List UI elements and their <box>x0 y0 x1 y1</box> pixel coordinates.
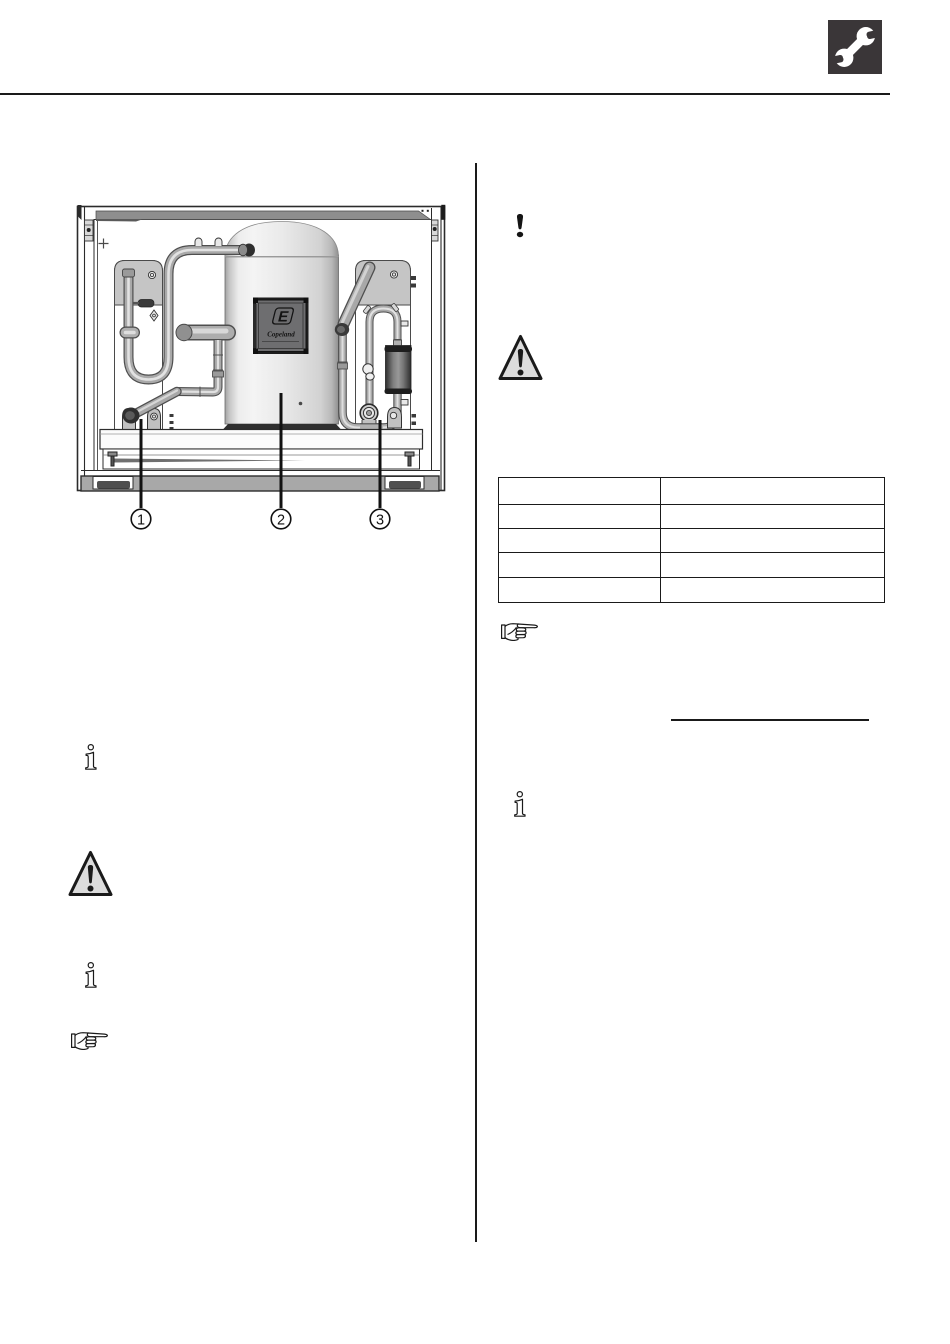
svg-text:2: 2 <box>277 512 285 528</box>
svg-text:3: 3 <box>376 512 384 528</box>
svg-text:Copeland: Copeland <box>267 331 295 339</box>
svg-text:1: 1 <box>137 512 145 528</box>
